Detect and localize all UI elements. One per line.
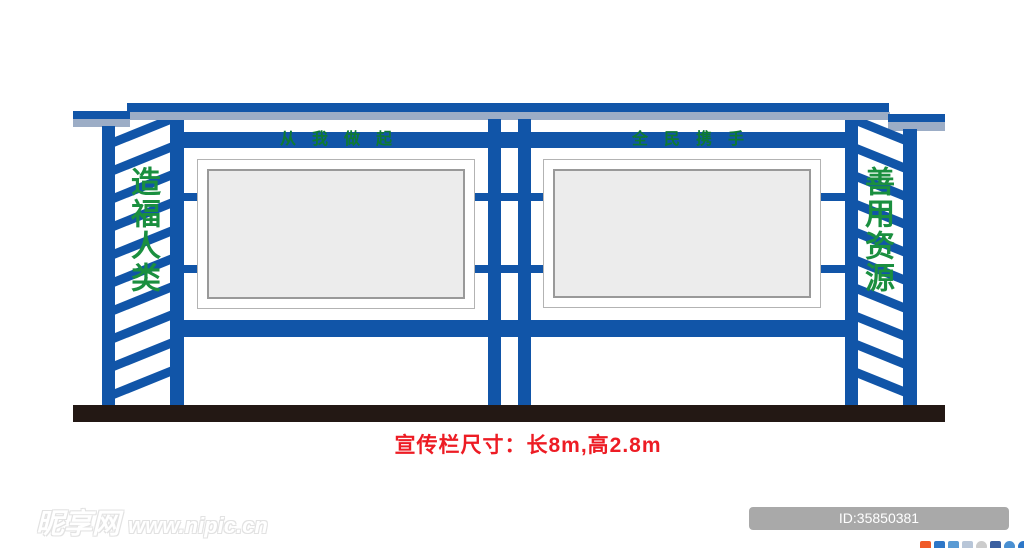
post-center-right [518,119,531,405]
notice-panel-right [543,159,821,308]
notice-panel-left [197,159,475,309]
nipic-stock-image-page: 从我做起 全民携手 造福人类 善用资源 宣传栏尺寸：长8m,高2.8m 昵享网w… [0,0,1024,548]
left-side-slogan: 造福人类 [126,166,158,294]
share-icon-douban[interactable] [976,541,987,548]
share-icon-kaixin[interactable] [962,541,973,548]
right-side-slogan: 善用资源 [860,166,892,294]
post-center-left [488,119,501,405]
bottom-rail [177,320,851,337]
share-icon-qq[interactable] [1004,541,1015,548]
share-icon-more[interactable] [1018,541,1024,548]
share-icon-renren[interactable] [948,541,959,548]
notice-panel-right-surface [553,169,811,298]
post-outer-left [102,126,115,405]
roof-left-eave [73,111,130,119]
share-icon-qzone[interactable] [934,541,945,548]
base-plinth [73,405,945,422]
right-panel-header-slogan: 全民携手 [531,131,845,148]
notice-panel-left-surface [207,169,465,299]
dimension-caption: 宣传栏尺寸：长8m,高2.8m [262,429,794,459]
site-watermark: 昵享网www.nipic.cn [36,502,268,542]
roof-top-gray-band [127,112,890,120]
share-icon-tqq[interactable] [990,541,1001,548]
roof-top-bar [127,103,889,112]
share-icon-weibo[interactable] [920,541,931,548]
share-icon-row [920,541,1024,548]
post-inner-left [170,120,184,405]
site-watermark-logo: 昵享网 [36,508,120,539]
site-watermark-url: www.nipic.cn [128,513,268,538]
image-id-badge: ID:35850381 NO:20250928161527952100 [749,507,1009,530]
left-panel-header-slogan: 从我做起 [184,131,488,148]
post-outer-right [903,129,917,405]
post-inner-right [845,120,858,405]
